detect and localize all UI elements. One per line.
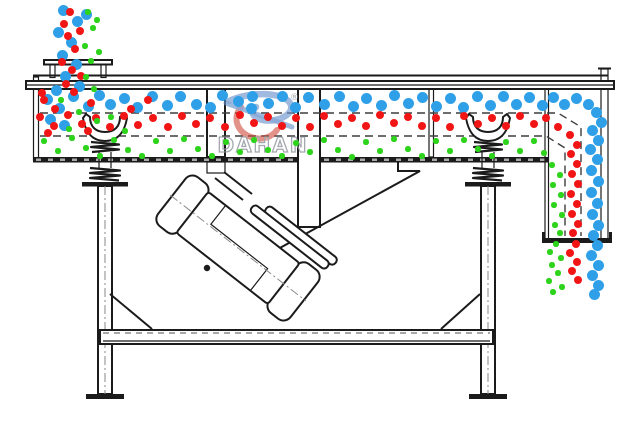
foot-plate <box>469 394 507 399</box>
spring-cup <box>466 114 510 141</box>
left-support-leg <box>86 186 124 399</box>
upper-spring <box>91 142 119 152</box>
right-support-leg <box>469 186 507 399</box>
registered-mark-icon: ® <box>290 93 299 103</box>
screen-box <box>26 69 614 242</box>
stiffener-rib <box>429 89 434 157</box>
machine-drawing: ® DAHAN <box>0 0 638 428</box>
chute-inner-wall <box>545 89 549 241</box>
right-wall <box>601 69 608 241</box>
motor-bolt <box>204 265 210 271</box>
lower-spring <box>473 168 503 181</box>
spring-cup <box>83 114 127 141</box>
inlet-flange <box>44 60 112 65</box>
stiffener-channel-2 <box>298 89 320 227</box>
cross-beam <box>100 330 493 344</box>
upper-spring <box>474 142 502 152</box>
lower-spring <box>90 168 120 181</box>
dahan-logo: ® DAHAN <box>217 93 308 157</box>
foot-plate <box>86 394 124 399</box>
right-brace <box>441 294 480 329</box>
left-brace <box>110 294 152 329</box>
vibrating-screen-diagram: ® DAHAN <box>0 0 638 428</box>
right-spring-assembly <box>465 114 511 187</box>
dahan-logo-text: DAHAN <box>217 133 308 157</box>
top-cover-beam <box>26 81 614 89</box>
left-spring-assembly <box>82 114 128 187</box>
